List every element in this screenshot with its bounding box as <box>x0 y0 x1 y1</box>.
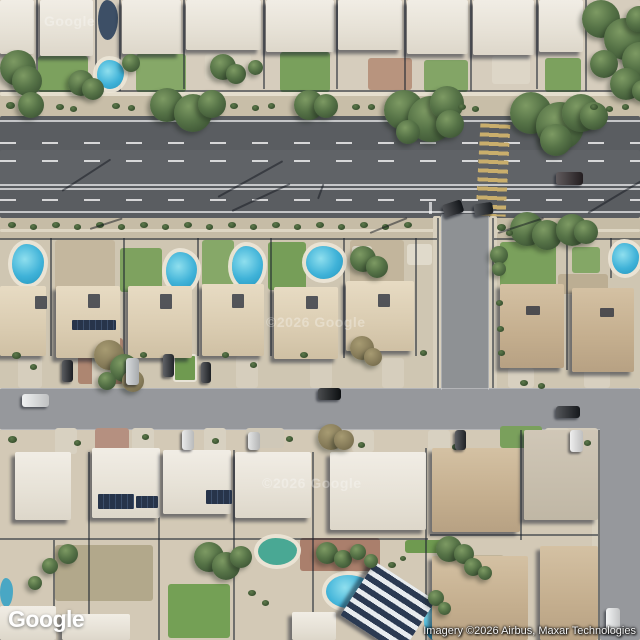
suv-on-main-road <box>556 172 583 185</box>
shrub <box>162 224 169 230</box>
lot-wall <box>430 534 598 536</box>
yard-patch <box>280 52 330 92</box>
yard-patch <box>382 358 404 388</box>
house-roof <box>330 452 426 530</box>
shrub <box>622 104 629 110</box>
lot-wall <box>123 238 125 356</box>
tree <box>492 262 506 276</box>
tree <box>248 60 263 75</box>
solar-panel-array <box>206 490 232 504</box>
yard-patch <box>572 247 600 273</box>
yard-patch <box>202 240 234 286</box>
shrub <box>74 224 81 230</box>
tree <box>364 348 382 366</box>
yard-patch <box>55 240 115 292</box>
driveway-car <box>455 430 466 450</box>
lot-wall <box>50 238 52 356</box>
car-on-street <box>556 406 580 418</box>
tree <box>438 602 451 615</box>
shrub <box>584 440 591 446</box>
garage-door-shadow <box>232 294 244 308</box>
lot-wall <box>270 238 272 356</box>
shrub <box>70 106 77 112</box>
house-roof <box>163 450 231 514</box>
house-roof <box>186 0 261 50</box>
tree <box>314 94 338 118</box>
lane-marking <box>488 216 489 390</box>
tree <box>42 558 58 574</box>
yard-patch <box>236 356 258 388</box>
lot-wall <box>0 238 437 240</box>
yard-patch <box>352 430 374 452</box>
shrub <box>538 383 545 389</box>
shrub <box>420 350 427 356</box>
lot-wall <box>404 0 406 91</box>
house-roof <box>266 0 334 52</box>
google-watermark-faint: ©2026 Google <box>266 314 366 330</box>
shrub <box>206 224 213 230</box>
parked-car <box>163 354 174 377</box>
tree <box>122 54 140 72</box>
garage-door-shadow <box>88 294 100 308</box>
lot-wall <box>415 238 417 356</box>
tree <box>18 92 44 118</box>
lot-wall <box>183 0 185 89</box>
shrub <box>294 224 301 230</box>
garage-door-shadow <box>526 306 540 315</box>
shrub <box>358 442 365 448</box>
driveway-car <box>570 430 583 452</box>
yard-patch <box>310 356 332 388</box>
lot-wall <box>536 0 538 89</box>
driveway-car <box>248 432 260 450</box>
house-roof <box>0 0 34 54</box>
tree <box>334 430 354 450</box>
house-roof <box>338 0 402 50</box>
map-canvas[interactable]: Google ©2026 Google ©2026 Google Google … <box>0 0 640 640</box>
shrub <box>118 224 125 230</box>
solar-panel-array <box>72 320 116 330</box>
solar-panel-array <box>98 494 134 509</box>
lane-marking <box>0 211 640 213</box>
tree <box>58 544 78 564</box>
garage-door-shadow <box>35 296 47 309</box>
shrub <box>286 436 293 442</box>
tree <box>82 78 104 100</box>
lane-marking <box>0 199 640 201</box>
lane-marking <box>0 160 640 162</box>
tree <box>366 256 388 278</box>
tree <box>198 90 226 118</box>
garage-door-shadow <box>600 308 614 317</box>
house-roof <box>500 284 564 368</box>
shrub <box>262 600 269 606</box>
lot-wall <box>263 0 265 89</box>
shrub <box>497 326 504 332</box>
garage-door-shadow <box>378 294 390 307</box>
tree <box>230 546 252 568</box>
shrub <box>498 350 505 356</box>
yard-patch <box>545 58 581 92</box>
tree <box>396 120 420 144</box>
tree <box>478 566 492 580</box>
house-roof <box>15 452 71 520</box>
shrub <box>338 224 345 230</box>
solar-panel-array <box>136 496 158 508</box>
parked-van <box>126 358 139 385</box>
google-logo[interactable]: Google <box>8 606 84 633</box>
parked-car <box>62 360 73 382</box>
shrub <box>496 300 503 306</box>
tree <box>436 110 464 138</box>
shrub <box>30 364 37 370</box>
google-watermark-faint: ©2026 Google <box>262 475 362 491</box>
shrub <box>128 105 135 111</box>
shrub <box>74 440 81 446</box>
lane-marking <box>429 202 432 214</box>
lot-wall <box>197 238 199 356</box>
tree <box>364 554 378 568</box>
car-on-street <box>318 388 341 400</box>
lot-wall <box>470 0 472 91</box>
lot-wall <box>437 218 439 388</box>
shrub <box>30 224 37 230</box>
lot-wall <box>343 238 345 358</box>
garage-door-shadow <box>306 296 318 309</box>
yard-patch <box>136 54 186 92</box>
shrub <box>252 105 259 111</box>
lot-wall <box>492 218 494 388</box>
shrub <box>142 434 149 440</box>
tree <box>574 220 598 244</box>
yard-patch <box>173 354 197 382</box>
shrub <box>222 352 229 358</box>
tree <box>226 64 246 84</box>
lot-wall <box>598 430 600 640</box>
lot-wall <box>88 452 90 640</box>
yard-patch <box>18 356 42 388</box>
house-roof <box>473 0 534 55</box>
yard-patch <box>407 244 432 265</box>
lot-wall <box>566 238 568 370</box>
driveway-car <box>182 430 194 450</box>
imagery-attribution: Imagery ©2026 Airbus, Maxar Technologies <box>423 625 636 637</box>
shrub <box>250 362 257 368</box>
garage-door-shadow <box>160 294 172 309</box>
tree <box>98 372 116 390</box>
shrub <box>368 104 375 110</box>
lane-marking <box>0 184 640 186</box>
shrub <box>212 438 219 444</box>
house-roof <box>572 288 634 372</box>
yard-patch <box>492 56 530 84</box>
lot-wall <box>0 538 428 540</box>
shrub <box>400 556 406 561</box>
shrub <box>250 224 257 230</box>
shrub <box>606 106 613 112</box>
tree <box>28 576 42 590</box>
google-watermark-faint: Google <box>44 13 95 29</box>
yard-patch <box>268 242 306 290</box>
house-roof <box>432 448 520 532</box>
house-roof <box>539 0 583 52</box>
yard-patch <box>168 584 230 638</box>
yard-patch <box>95 428 129 450</box>
house-roof <box>292 612 336 640</box>
shrub <box>140 352 147 358</box>
house-roof <box>407 0 468 54</box>
house-roof <box>122 0 181 54</box>
lot-wall <box>520 430 522 540</box>
tree <box>540 124 572 156</box>
white-truck <box>22 394 49 407</box>
shrub <box>268 103 275 109</box>
lane-marking <box>441 216 442 390</box>
parked-car <box>201 362 211 383</box>
cross-street-north <box>441 214 489 392</box>
shrub <box>472 106 479 112</box>
